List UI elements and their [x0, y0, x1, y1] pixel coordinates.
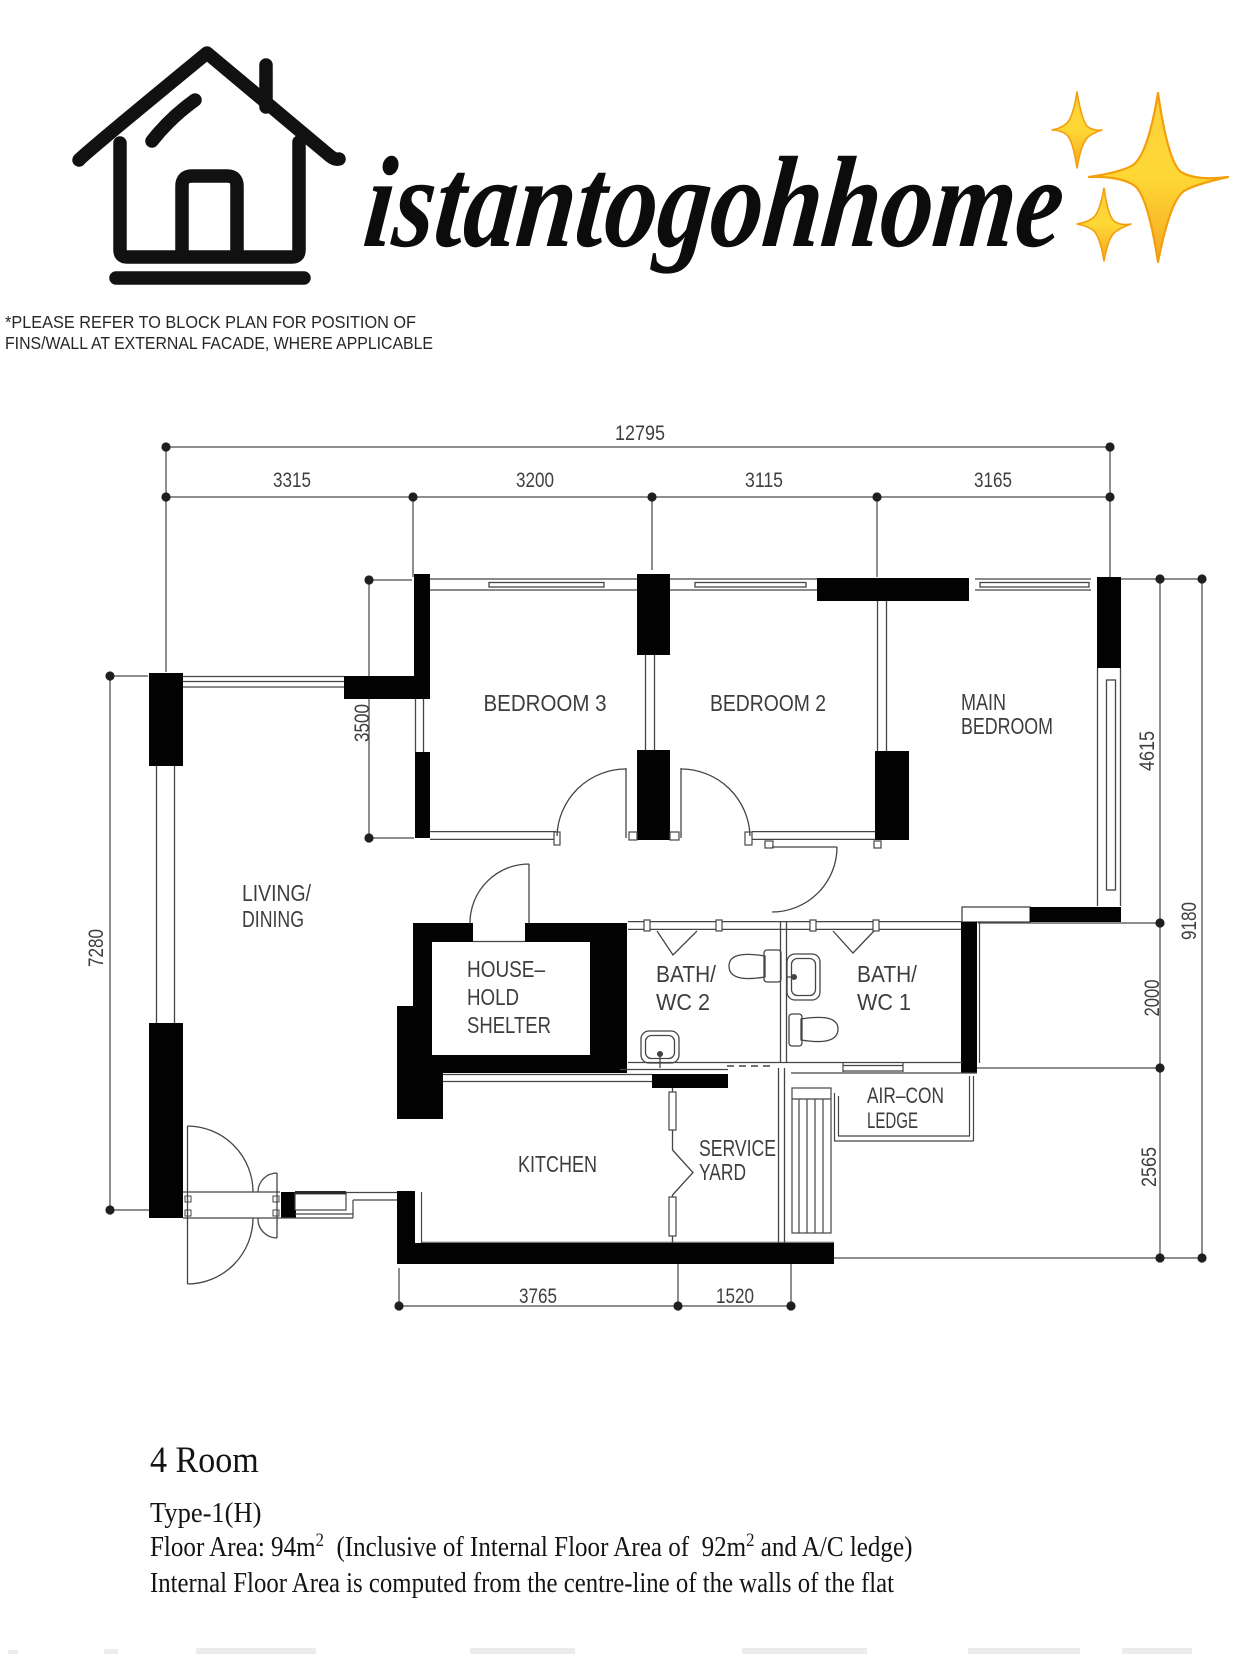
svg-text:7280: 7280 [84, 929, 108, 967]
svg-text:HOUSE–: HOUSE– [467, 956, 546, 982]
svg-text:Internal Floor Area is compute: Internal Floor Area is computed from the… [150, 1566, 895, 1598]
svg-text:Floor Area: 94m2 (Inclusive o: Floor Area: 94m2 (Inclusive of Internal … [150, 1529, 912, 1562]
svg-text:WC 1: WC 1 [857, 989, 911, 1015]
svg-text:2565: 2565 [1137, 1147, 1161, 1187]
svg-text:BEDROOM 2: BEDROOM 2 [710, 690, 826, 716]
svg-text:2000: 2000 [1140, 979, 1164, 1016]
svg-text:istantogohhome: istantogohhome [358, 131, 1071, 275]
svg-text:4615: 4615 [1135, 731, 1159, 771]
svg-text:FINS/WALL AT EXTERNAL FACADE,: FINS/WALL AT EXTERNAL FACADE, WHERE APPL… [5, 333, 433, 353]
svg-text:DINING: DINING [242, 906, 304, 932]
svg-text:YARD: YARD [699, 1159, 746, 1185]
svg-text:1520: 1520 [716, 1284, 754, 1308]
svg-text:SHELTER: SHELTER [467, 1012, 551, 1038]
svg-text:LIVING/: LIVING/ [242, 880, 311, 906]
svg-text:BEDROOM 3: BEDROOM 3 [484, 690, 607, 716]
svg-text:LEDGE: LEDGE [867, 1108, 918, 1133]
svg-text:3165: 3165 [974, 468, 1012, 492]
svg-text:3765: 3765 [519, 1284, 557, 1308]
svg-text:AIR–CON: AIR–CON [867, 1083, 944, 1108]
svg-text:3115: 3115 [745, 468, 783, 492]
svg-text:HOLD: HOLD [467, 984, 519, 1010]
svg-text:SERVICE: SERVICE [699, 1135, 776, 1161]
svg-text:BEDROOM: BEDROOM [961, 713, 1053, 739]
svg-text:WC 2: WC 2 [656, 989, 710, 1015]
svg-text:4 Room: 4 Room [150, 1439, 259, 1481]
svg-text:MAIN: MAIN [961, 689, 1006, 715]
svg-text:3315: 3315 [273, 468, 311, 492]
svg-text:KITCHEN: KITCHEN [518, 1151, 597, 1177]
svg-text:Type-1(H): Type-1(H) [150, 1496, 261, 1528]
svg-text:3200: 3200 [516, 468, 554, 492]
svg-text:BATH/: BATH/ [857, 961, 917, 987]
svg-text:3500: 3500 [350, 704, 374, 742]
svg-text:12795: 12795 [615, 421, 665, 445]
svg-text:9180: 9180 [1177, 902, 1201, 940]
svg-text:BATH/: BATH/ [656, 961, 716, 987]
svg-text:*PLEASE REFER TO BLOCK PLAN FO: *PLEASE REFER TO BLOCK PLAN FOR POSITION… [5, 312, 416, 332]
